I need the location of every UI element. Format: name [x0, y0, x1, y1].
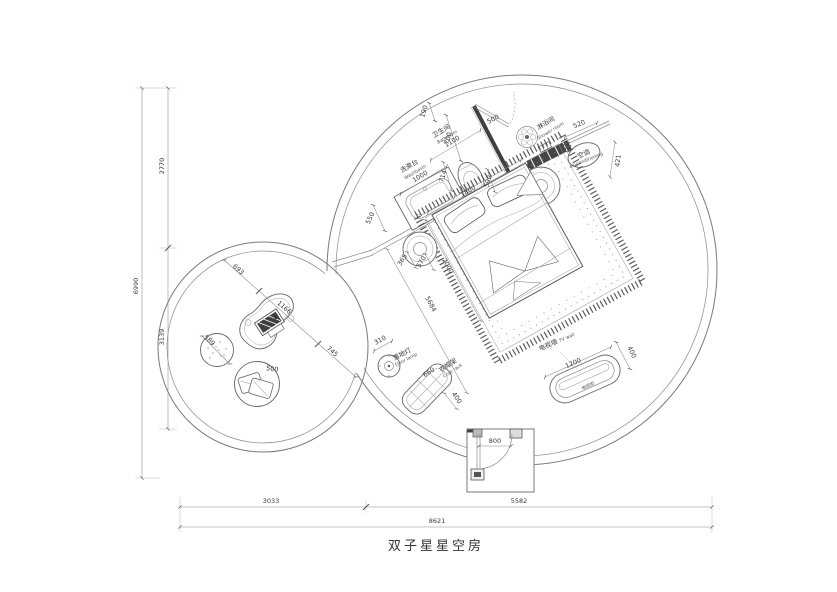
dim-cushion: 500: [266, 364, 279, 374]
floor-lamp: 310 落地灯 Floor lamp: [373, 334, 419, 378]
dim-bed-length: 2000: [440, 257, 455, 275]
left-dimension-chain: 6990 2770 3139: [132, 88, 177, 478]
tv-wall-label-zh: 电视墙: [537, 336, 559, 352]
tv-wall-label-en: TV wall: [557, 332, 575, 345]
dim-entry: 800: [489, 437, 501, 445]
dim-room-diag: 5684: [423, 295, 438, 313]
dim-left-upper: 2770: [158, 158, 166, 175]
shower-bench: [523, 134, 572, 170]
floor-plan-drawing: 6990 2770 3139 3033 5582 8621: [0, 0, 837, 592]
dim-tv-depth: 400: [625, 345, 638, 360]
dim-bath-door: 500: [486, 113, 501, 126]
dim-bottom-total: 8621: [429, 517, 446, 525]
bottom-dimension-chain: 3033 5582 8621: [180, 497, 712, 532]
kidney-table: [231, 287, 306, 355]
bathroom-label: 卫生间 Bathroom 1100: [418, 109, 480, 160]
passage-opening: [315, 266, 373, 377]
entry-vestibule: 800: [467, 429, 534, 492]
coat-rack: 660 衣帽架 Coat rack 400: [398, 354, 464, 418]
dim-top-offset: 190: [418, 104, 429, 118]
dim-ac-depth: 421: [613, 154, 622, 167]
dim-basin-side: 550: [364, 211, 376, 226]
dim-bottom-right: 5582: [511, 497, 528, 505]
drawing-title: 双子星星空房: [388, 538, 484, 554]
floor-plan-canvas: 6990 2770 3139 3033 5582 8621: [0, 0, 837, 592]
dim-left-total: 6990: [132, 278, 140, 295]
dim-bottom-left: 3033: [263, 497, 280, 505]
dim-lounge-a: 693: [231, 262, 246, 276]
dim-lounge-c: 745: [325, 344, 340, 358]
shower-head-icon: [517, 127, 538, 148]
tv-cabinet: 电视柜 电视墙 TV wall 1200 400: [537, 329, 638, 408]
